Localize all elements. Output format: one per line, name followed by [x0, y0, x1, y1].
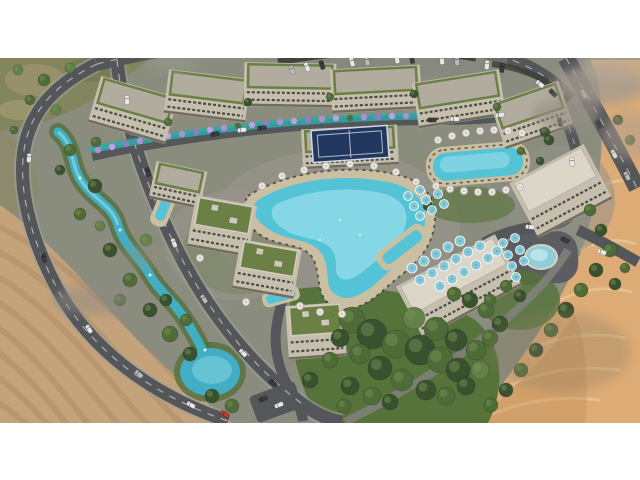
building-block: [232, 239, 302, 299]
car: [26, 153, 31, 162]
car: [484, 60, 489, 69]
resort-aerial-render: [0, 0, 640, 480]
padel-court: [311, 125, 389, 162]
car: [499, 63, 504, 72]
car: [495, 112, 505, 118]
car: [428, 118, 437, 122]
car: [125, 95, 130, 104]
car: [570, 157, 575, 166]
car: [237, 127, 247, 133]
aerial-scene-svg: [0, 0, 640, 480]
car: [257, 125, 266, 130]
building-block: [330, 65, 422, 114]
car: [450, 117, 459, 122]
car: [525, 224, 534, 229]
